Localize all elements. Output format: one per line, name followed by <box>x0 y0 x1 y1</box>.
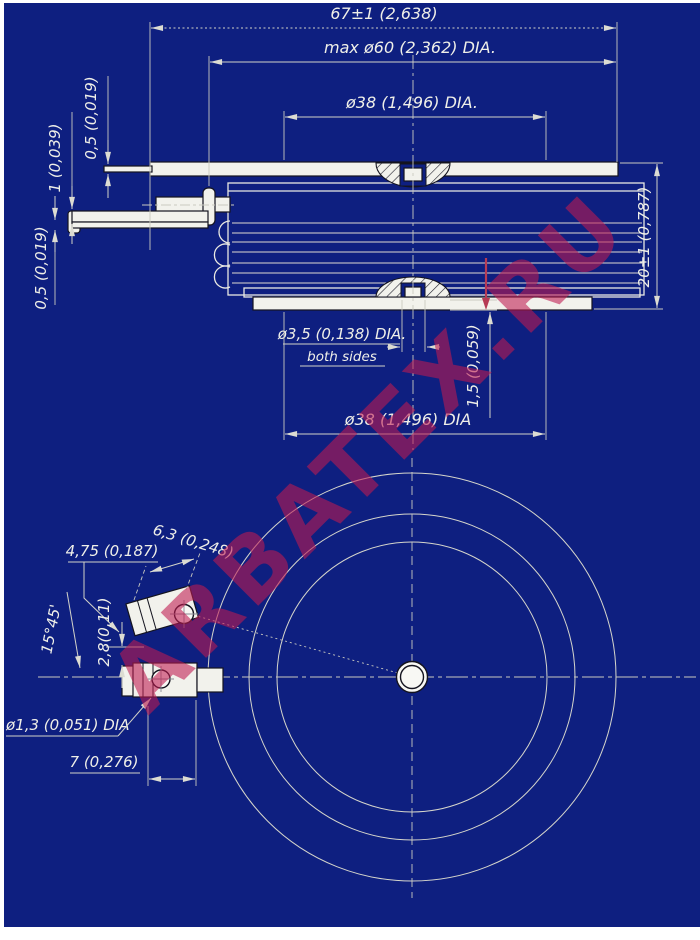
dim-label-recess-note: both sides <box>307 349 377 365</box>
center-hole <box>397 662 428 693</box>
dim-label-lug-width: 4,75 (0,187) <box>66 542 159 560</box>
dim-label-height: 20±1 (0,787) <box>635 187 653 288</box>
flat-lead <box>72 211 208 222</box>
dim-label-top-pole-diameter: ø38 (1,496) DIA. <box>345 93 478 112</box>
flat-lead-2 <box>72 222 208 228</box>
dim-label-terminal-length: 7 (0,276) <box>70 753 139 771</box>
dim-label-hole-diameter: ø1,3 (0,051) DIA <box>5 716 129 734</box>
dim-label-tab-thickness: 0,5 (0,019) <box>82 76 100 159</box>
drawing-sheet: 67±1 (2,638) max ø60 (2,362) DIA. ø38 (1… <box>0 0 700 940</box>
dim-label-lead2-thickness: 0,5 (0,019) <box>32 226 50 309</box>
gate-sleeve <box>156 197 230 212</box>
dim-label-max-body-diameter: max ø60 (2,362) DIA. <box>324 38 496 57</box>
dim-label-overall-width: 67±1 (2,638) <box>330 4 437 23</box>
dim-label-recess-diameter: ø3,5 (0,138) DIA. <box>277 325 407 343</box>
engineering-drawing-canvas: 67±1 (2,638) max ø60 (2,362) DIA. ø38 (1… <box>0 0 700 940</box>
flat-tab <box>104 166 152 172</box>
dim-label-lead-thickness: 1 (0,039) <box>46 124 64 193</box>
